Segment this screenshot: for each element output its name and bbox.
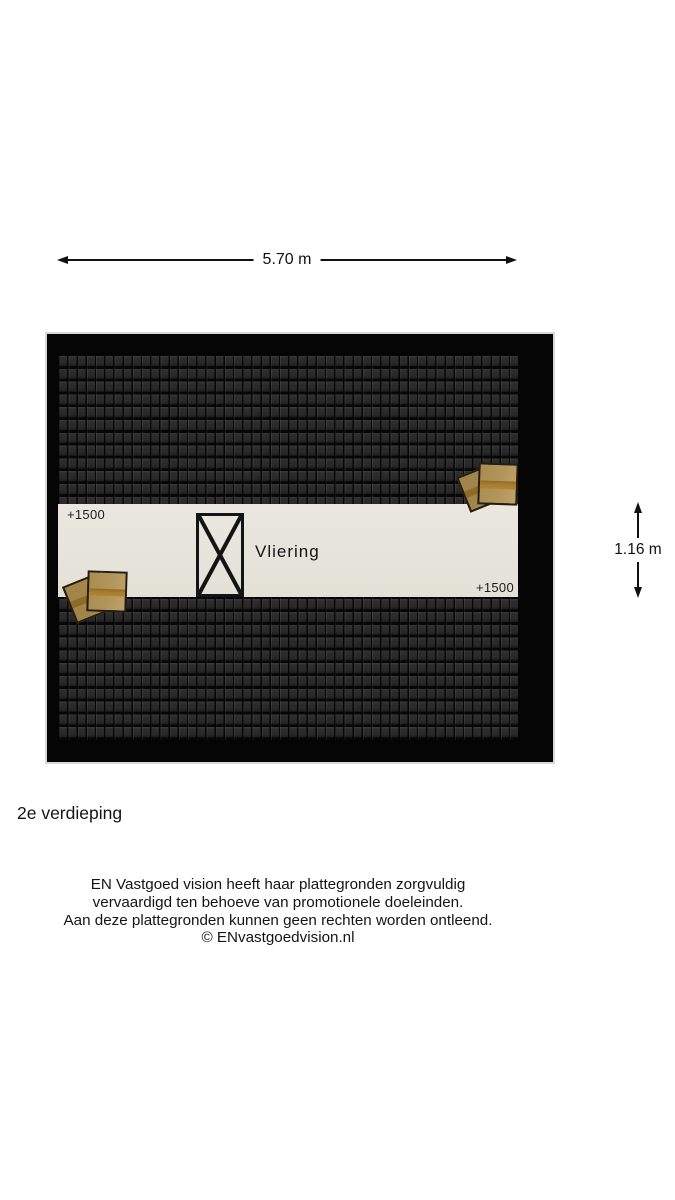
room-label: Vliering (255, 542, 320, 562)
level-marker-top-left: +1500 (67, 507, 105, 522)
arrowhead-left-icon (57, 256, 68, 264)
box-band (87, 588, 127, 597)
disclaimer-line-3: Aan deze plattegronden kunnen geen recht… (0, 912, 556, 930)
storage-box-bottom-left (86, 570, 127, 612)
floor-title: 2e verdieping (17, 803, 122, 824)
arrowhead-right-icon (506, 256, 517, 264)
width-dimension: 5.70 m (57, 252, 517, 268)
disclaimer-line-4: © ENvastgoedvision.nl (0, 929, 556, 947)
box-band (478, 480, 518, 489)
height-dimension-label: 1.16 m (612, 538, 663, 562)
disclaimer-line-1: EN Vastgoed vision heeft haar plattegron… (0, 876, 556, 894)
height-dimension: 1.16 m (612, 502, 664, 598)
disclaimer-line-2: vervaardigd ten behoeve van promotionele… (0, 894, 556, 912)
disclaimer-text: EN Vastgoed vision heeft haar plattegron… (0, 876, 556, 947)
level-marker-bottom-right: +1500 (476, 580, 514, 595)
hatch-cross-icon (199, 516, 241, 594)
storage-box-top-right (477, 462, 518, 505)
floorplan-drawing: +1500 +1500 Vlierin (47, 334, 553, 762)
arrowhead-up-icon (634, 502, 642, 513)
arrowhead-down-icon (634, 587, 642, 598)
width-dimension-label: 5.70 m (254, 251, 321, 269)
hatch-opening-symbol (196, 513, 244, 597)
floorplan-figure: 5.70 m +1500 +1500 (0, 0, 675, 1200)
